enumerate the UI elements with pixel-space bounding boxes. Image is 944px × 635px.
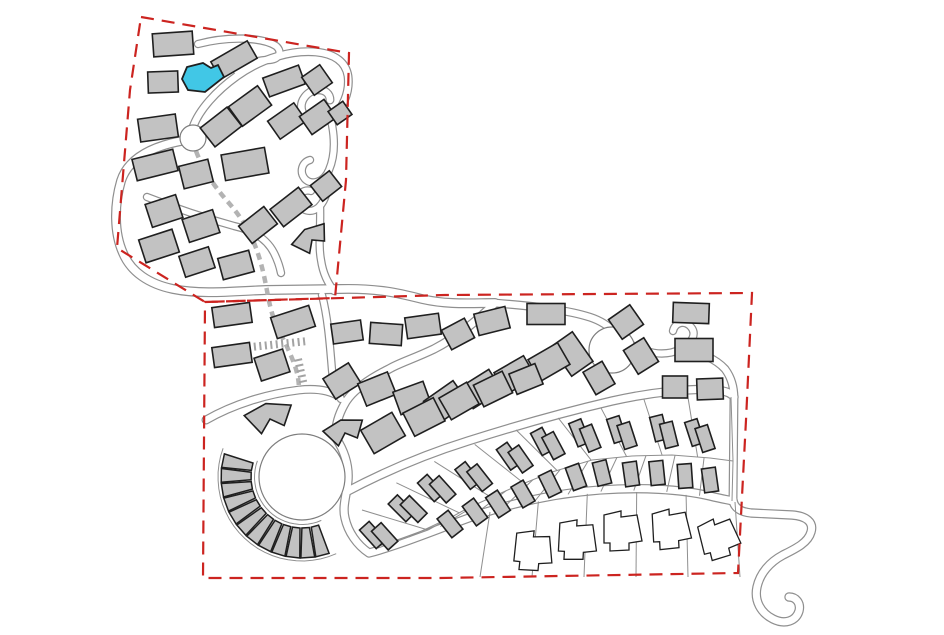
building	[263, 65, 306, 97]
central-circus	[259, 434, 345, 520]
house-pair	[650, 412, 679, 450]
radial-building	[222, 454, 253, 471]
building	[331, 320, 363, 344]
chevron-building	[289, 219, 333, 259]
building	[675, 339, 713, 362]
building	[139, 229, 180, 263]
white-house-outline	[558, 519, 598, 561]
building	[361, 412, 406, 453]
building	[218, 250, 255, 280]
house-pair	[607, 413, 637, 452]
masterplan-site-drawing	[0, 0, 944, 635]
house-pair	[569, 416, 601, 455]
building	[358, 372, 397, 406]
house-pair	[531, 424, 566, 464]
building	[663, 376, 688, 398]
building	[673, 302, 710, 323]
building	[369, 322, 402, 345]
house-pair	[496, 438, 533, 478]
house	[677, 464, 693, 489]
building	[474, 306, 510, 335]
building	[697, 378, 724, 400]
building	[148, 71, 179, 93]
house	[565, 463, 586, 490]
house	[437, 510, 463, 538]
building	[310, 171, 341, 202]
house-pair	[455, 457, 492, 497]
house	[592, 460, 611, 487]
building	[271, 305, 316, 338]
building	[212, 342, 252, 367]
white-house-outline	[652, 508, 692, 550]
house	[701, 467, 718, 493]
building	[138, 114, 179, 142]
building	[212, 302, 252, 327]
house-pair	[685, 416, 715, 455]
building	[152, 31, 194, 57]
building	[179, 159, 214, 189]
building	[527, 304, 565, 325]
site-plan-viewport[interactable]	[0, 0, 944, 635]
building	[405, 313, 442, 339]
building	[221, 147, 269, 180]
white-house-outline	[513, 529, 555, 573]
building	[179, 247, 215, 278]
house	[649, 460, 665, 485]
building	[254, 349, 290, 381]
house	[622, 461, 639, 487]
